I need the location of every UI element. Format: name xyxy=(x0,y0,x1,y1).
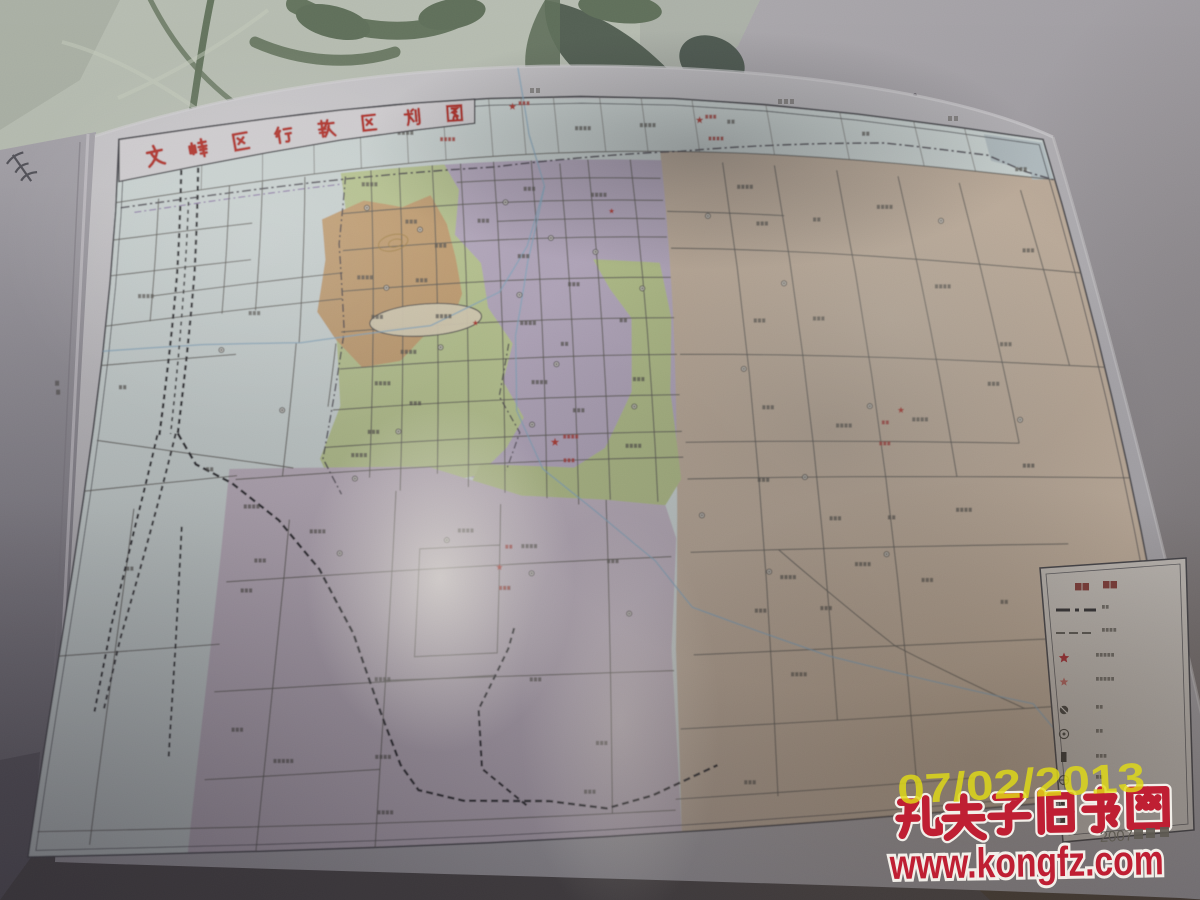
svg-text:www.kongfz.com: www.kongfz.com xyxy=(889,836,1165,888)
